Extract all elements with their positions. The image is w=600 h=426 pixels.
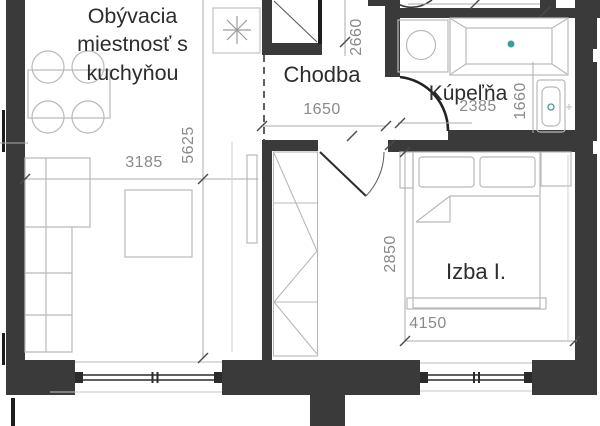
dim-hallway-depth: 2660 [347,7,367,67]
door-room1 [320,152,384,196]
sofa [25,158,90,352]
washing-machine-icon [398,20,448,72]
coffee-table [125,190,192,257]
window-room1 [420,363,532,391]
floor-plan: Obývacia miestnosť s kuchyňou Chodba Kúp… [0,0,600,426]
blanket-fold [416,196,539,222]
dim-living-depth: 5625 [179,115,199,175]
sink-icon [537,80,572,132]
dim-hallway-width: 1650 [292,100,352,120]
dim-bathroom-depth: 1660 [511,71,531,131]
room-label-room1: Izba I. [414,257,538,286]
chair-icon [32,101,64,133]
cabinet-diagonal [274,1,317,42]
wardrobe [274,152,318,356]
dim-room1-depth: 2850 [381,224,401,284]
tv-board [247,155,257,243]
chair-icon [72,101,104,133]
nightstand [541,152,571,186]
pillow [480,157,535,187]
headboard [407,298,546,309]
window-living [50,362,222,392]
nightstand [400,152,413,188]
dim-living-width: 3185 [114,153,174,173]
room-label-living: Obývacia miestnosť s kuchyňou [40,2,225,87]
pillow [419,157,474,187]
dim-bathroom-width: 2385 [448,97,508,117]
bathtub-drain-dot [508,41,515,48]
dim-room1-width: 4150 [398,314,458,334]
